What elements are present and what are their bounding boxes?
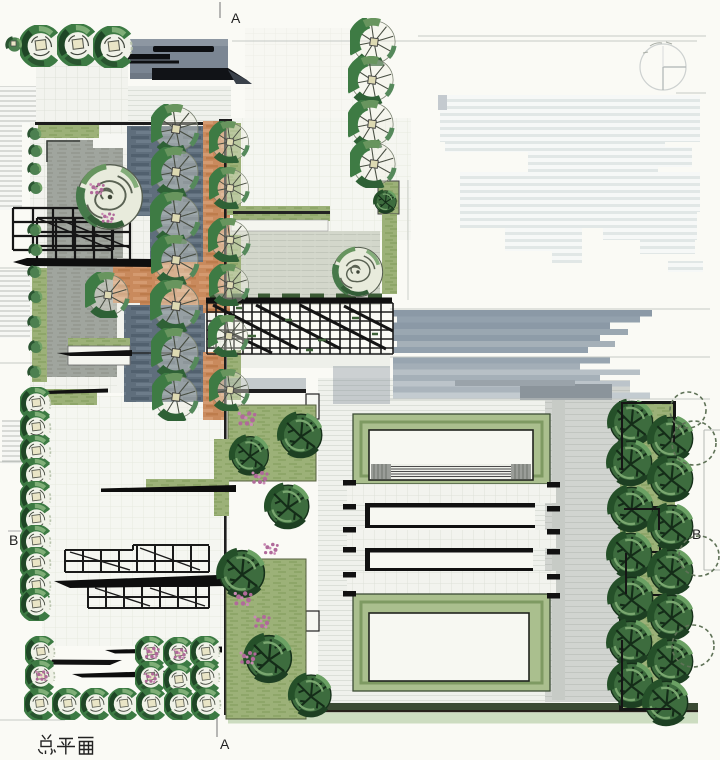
svg-text:B: B [9, 532, 18, 548]
svg-text:A: A [231, 10, 241, 26]
svg-text:B: B [692, 526, 701, 542]
svg-text:A: A [220, 736, 230, 752]
